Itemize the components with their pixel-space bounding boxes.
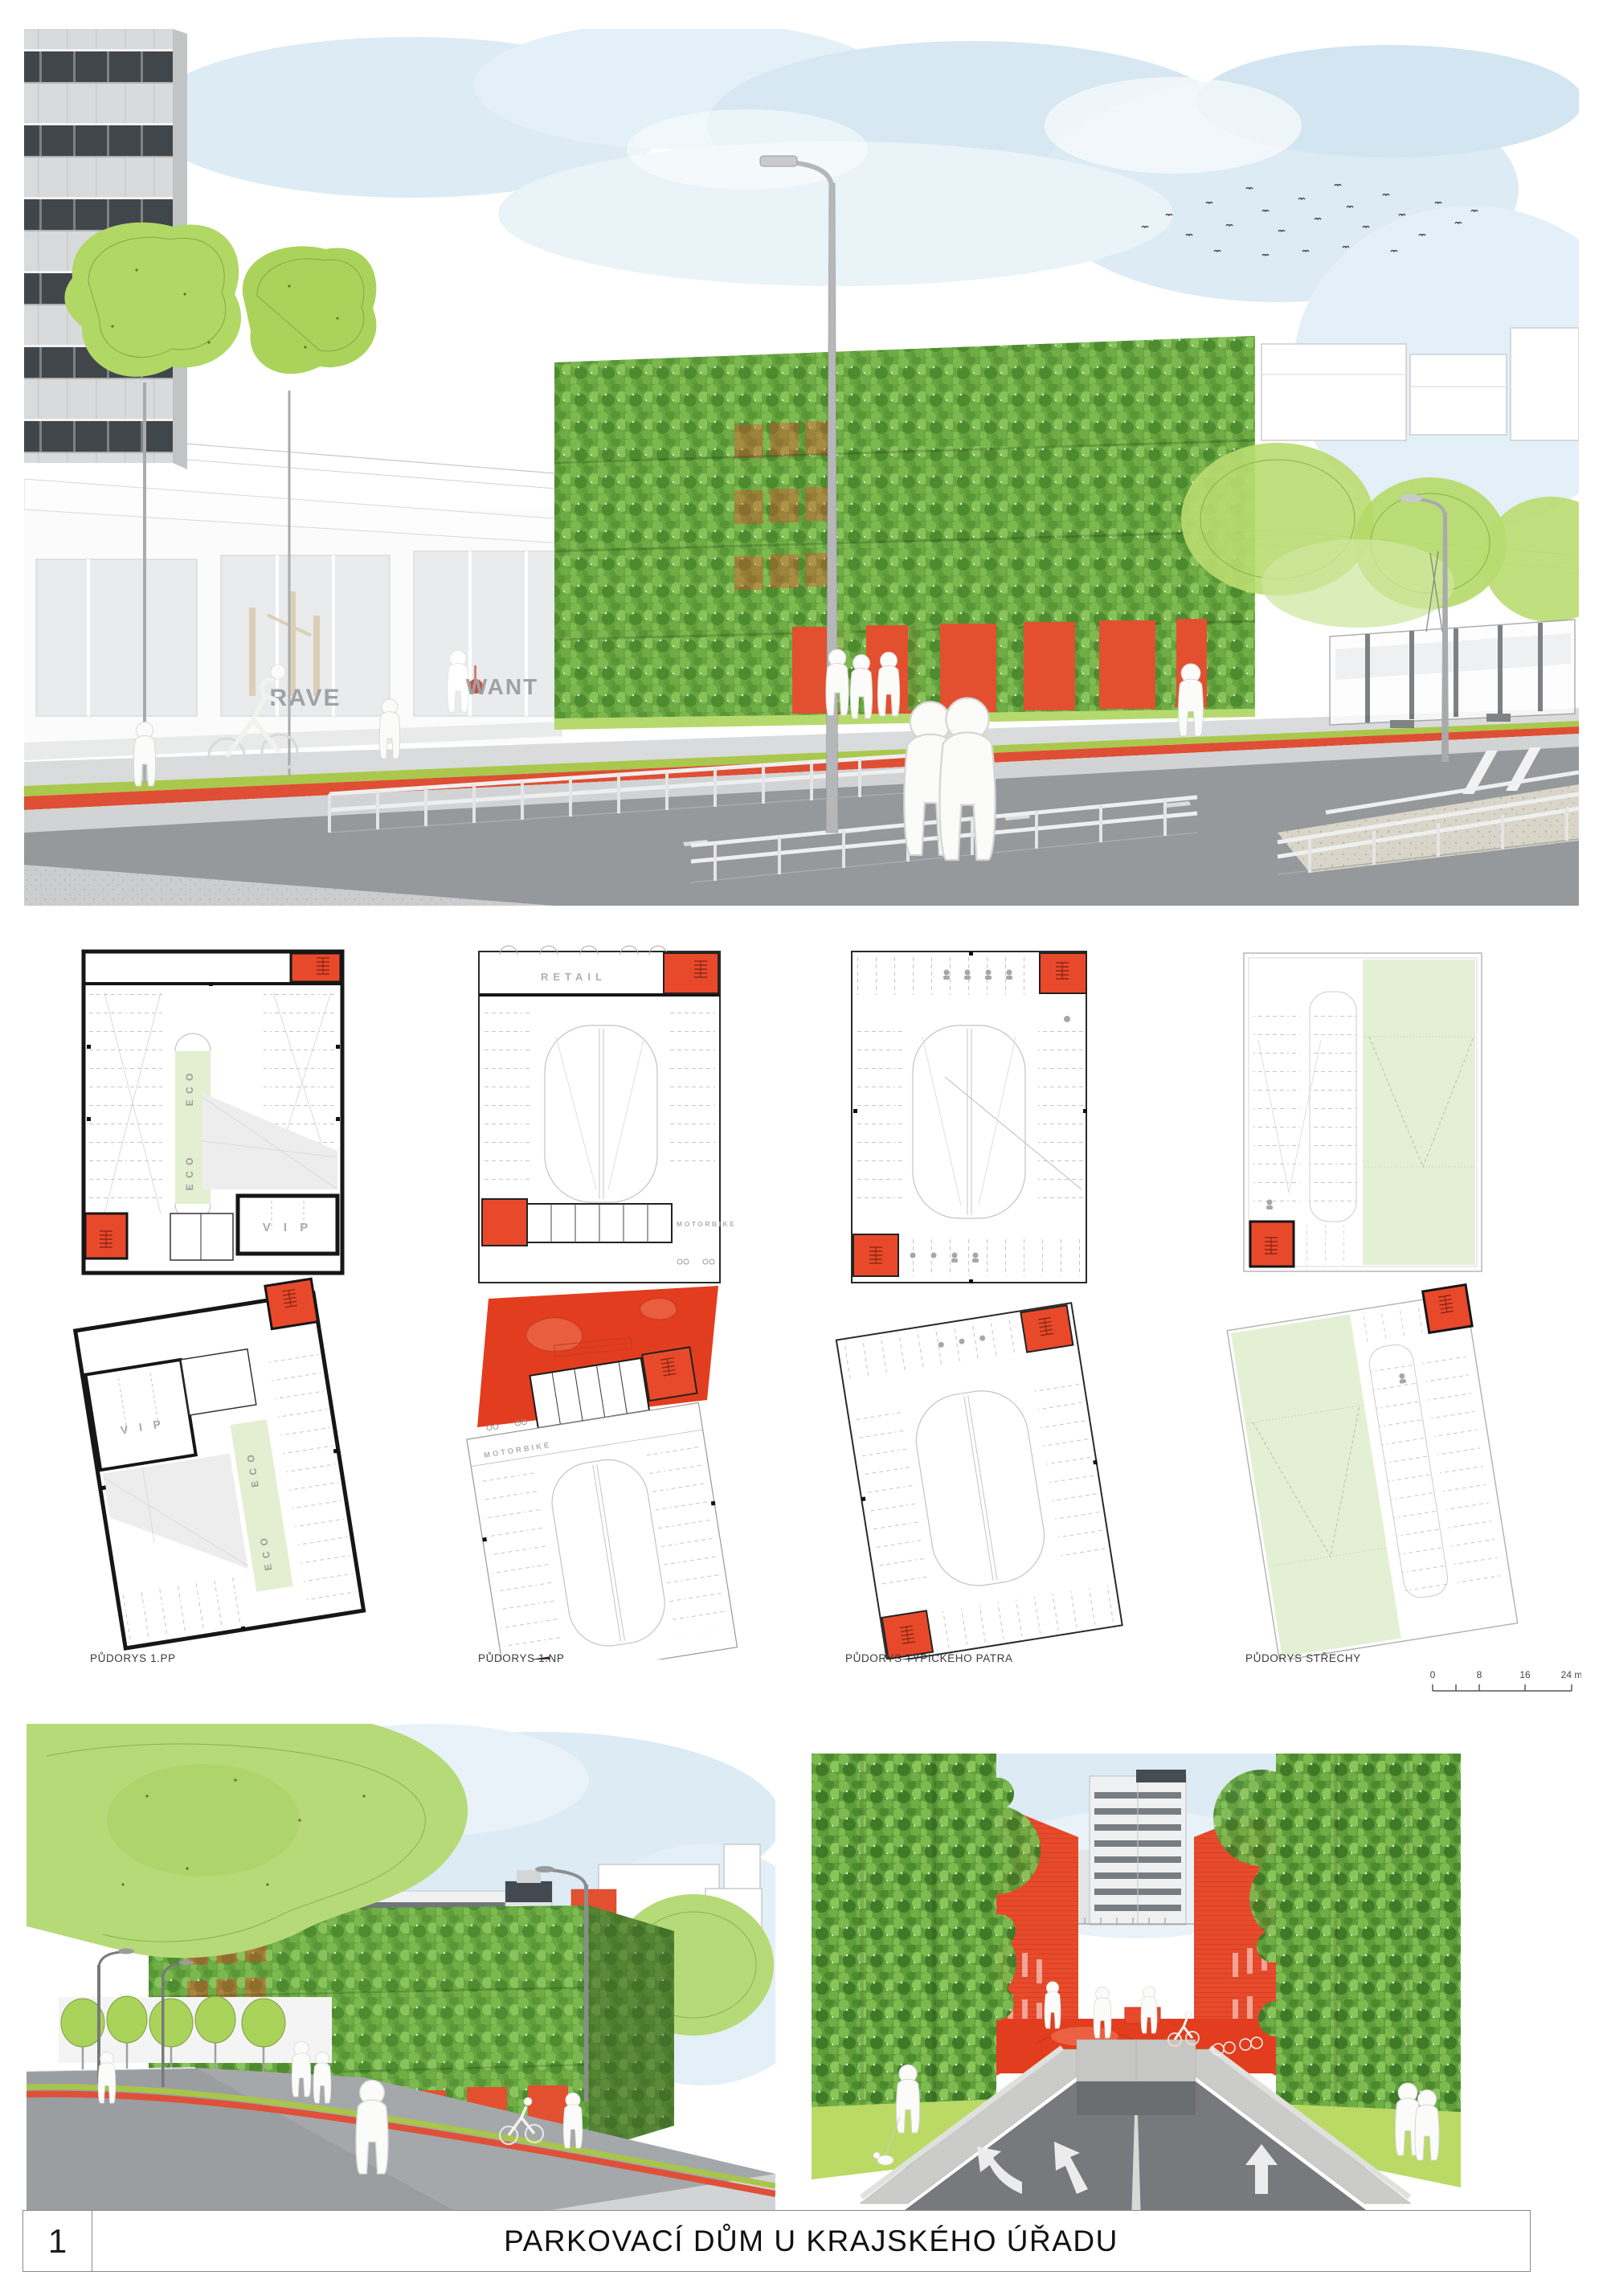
plan-vip-label: V I P (263, 1221, 313, 1234)
background-office (1077, 1770, 1197, 1925)
bottom-right-rendering (812, 1754, 1461, 2222)
plan-eco-label: E C O (184, 1156, 195, 1191)
plan-roof-lower-tilted (1226, 1285, 1519, 1660)
scale-tick-0: 0 (1430, 1669, 1436, 1680)
plan-eco-label: E C O (184, 1072, 195, 1107)
plan-1np-upper: RETAIL MOTORBIKE (479, 946, 736, 1283)
plan-1pp-lower-tilted: V I P E C O E C O (73, 1279, 364, 1649)
board-title: PARKOVACÍ DŮM U KRAJSKÉHO ÚŘADU (92, 2211, 1530, 2271)
plan-retail-label: RETAIL (541, 971, 607, 983)
bottom-left-rendering (27, 1724, 775, 2222)
plan-label-roof: PŮDORYS STŘECHY (1245, 1652, 1361, 1664)
shop-sign-rave: RAVE (269, 685, 341, 711)
top-perspective-rendering: RAVE WANT (24, 29, 1579, 906)
green-parking-building (554, 336, 1255, 718)
floor-plans: E C O E C O V I P V I P E C O (0, 940, 1607, 1660)
plan-typical-lower-tilted (836, 1303, 1123, 1660)
scale-tick-16: 16 (1519, 1669, 1531, 1680)
presentation-board: RAVE WANT (0, 0, 1607, 2296)
plan-label-1np: PŮDORYS 1.NP (478, 1652, 564, 1664)
plan-1pp-upper: E C O E C O V I P (84, 952, 342, 1273)
green-roof-area (1363, 960, 1475, 1265)
plan-typical-upper (852, 952, 1087, 1283)
plan-roof-upper (1244, 953, 1482, 1271)
plan-label-1pp: PŮDORYS 1.PP (90, 1652, 176, 1664)
plan-label-typical: PŮDORYS TYPICKÉHO PATRA (845, 1652, 1013, 1664)
shop-sign-want: WANT (466, 674, 538, 699)
scale-tick-8: 8 (1477, 1669, 1482, 1680)
plan-motorbike-label: MOTORBIKE (677, 1220, 736, 1228)
shop-row-building: RAVE WANT (24, 479, 587, 760)
scale-bar: 0 8 16 24 m (1429, 1665, 1581, 1701)
title-block: 1 PARKOVACÍ DŮM U KRAJSKÉHO ÚŘADU (22, 2210, 1531, 2272)
sheet-number: 1 (23, 2211, 92, 2271)
scale-tick-24: 24 m (1561, 1669, 1581, 1680)
